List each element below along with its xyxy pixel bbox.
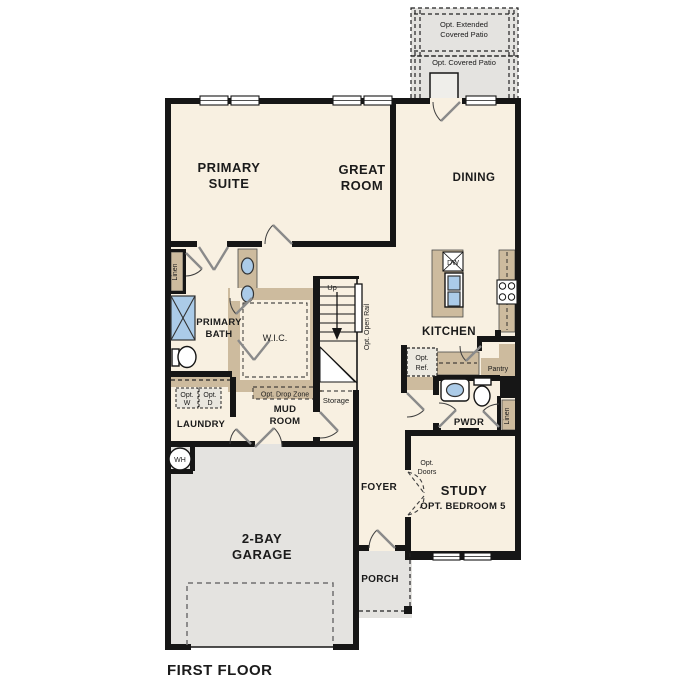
wall-laundry-mud — [230, 377, 236, 417]
ref-counter — [407, 377, 437, 390]
wic-label: W.I.C. — [263, 333, 288, 343]
storage-label: Storage — [323, 396, 349, 405]
window — [466, 96, 496, 105]
water-heater-label: WH — [174, 457, 186, 464]
wall-suite-divider — [390, 98, 396, 247]
opt-extended-patio-label-1: Opt. Extended — [440, 20, 488, 29]
opt-open-rail-label: Opt. Open Rail — [364, 303, 371, 350]
window — [333, 96, 361, 105]
opt-ref-label-1: Opt. — [415, 355, 428, 362]
wall-garage-top-2 — [282, 441, 359, 447]
foyer-label: FOYER — [361, 482, 397, 493]
laundry-label: LAUNDRY — [177, 419, 226, 430]
vanity-sink-1 — [242, 258, 254, 274]
pantry-label: Pantry — [488, 366, 509, 373]
linen-left-label: Linen — [172, 263, 179, 280]
window — [364, 96, 392, 105]
porch-post — [404, 606, 412, 614]
primary-suite-label-2: SUITE — [209, 176, 250, 191]
bath-toilet-bowl — [178, 347, 196, 368]
opt-covered-patio-label: Opt. Covered Patio — [432, 58, 496, 67]
study-label: STUDY — [441, 483, 488, 498]
opt-ref-label-2: Ref. — [416, 365, 429, 372]
opt-extended-patio-label-2: Covered Patio — [440, 30, 488, 39]
floor-plan-drawing: Opt. Extended Covered Patio Opt. Covered… — [0, 0, 687, 687]
wall-foyer-front-1 — [359, 545, 369, 551]
porch-label: PORCH — [361, 574, 399, 585]
wall-stairs-left — [313, 278, 320, 390]
window — [433, 553, 460, 560]
wall-suite-bottom-3 — [292, 241, 390, 247]
opt-drop-zone-label: Opt. Drop Zone — [261, 392, 309, 399]
kitchen-label: KITCHEN — [422, 326, 476, 338]
wall-study-left-1 — [405, 436, 411, 470]
dining-label: DINING — [453, 172, 496, 184]
patio-areas: Opt. Extended Covered Patio Opt. Covered… — [411, 8, 518, 103]
wall-linen-side — [183, 249, 186, 294]
wall-right — [515, 98, 521, 560]
opt-washer-label-1: Opt. — [180, 392, 193, 399]
opt-bedroom5-label: OPT. BEDROOM 5 — [420, 501, 506, 512]
wall-study-bottom — [405, 551, 521, 560]
island-sink-basin-1 — [448, 276, 460, 290]
wall-garage-right — [353, 390, 359, 650]
opt-dryer-label-1: Opt. — [203, 392, 216, 399]
laundry-counter — [171, 377, 230, 387]
window — [231, 96, 259, 105]
wall-suite-bottom-2 — [227, 241, 262, 247]
wall-counter-end — [495, 330, 501, 338]
primary-suite-label-1: PRIMARY — [198, 160, 261, 175]
linen-right-label: Linen — [504, 407, 511, 424]
wall-study-top — [405, 430, 521, 436]
opt-washer-label-2: W — [184, 400, 191, 407]
window — [464, 553, 491, 560]
wall-ref-left — [401, 345, 407, 393]
opt-doors-label-2: Doors — [418, 469, 437, 476]
opt-dryer-label-2: D — [207, 400, 212, 407]
patio-door-opening — [430, 98, 462, 104]
mud-room-label-2: ROOM — [270, 416, 301, 427]
wall-bath-laundry — [165, 371, 232, 377]
pwdr-toilet-bowl — [474, 386, 490, 406]
opt-doors-label-1: Opt. — [420, 460, 433, 467]
great-room-label-1: GREAT — [338, 162, 385, 177]
first-floor-title: FIRST FLOOR — [167, 662, 273, 679]
stairs-up-label: Up — [327, 283, 337, 292]
pwdr-toilet-tank — [474, 378, 491, 385]
window — [200, 96, 228, 105]
dishwasher-label: DW — [447, 260, 459, 267]
garage-label-2: GARAGE — [232, 547, 292, 562]
primary-bath-label-1: PRIMARY — [196, 317, 242, 328]
great-room-label-2: ROOM — [341, 178, 383, 193]
mud-room-label-1: MUD — [274, 404, 297, 415]
pantry-shelf-upper — [499, 344, 515, 358]
wall-block-right — [500, 376, 521, 398]
wall-garage-bottom-2 — [333, 644, 359, 650]
wall-garage-top-1 — [165, 441, 255, 447]
pwdr-sink — [447, 384, 464, 397]
wall-study-left-2 — [405, 517, 411, 551]
wall-storage-left-2 — [313, 437, 320, 447]
pwdr-label: PWDR — [454, 417, 484, 428]
floor-plan-page: Opt. Extended Covered Patio Opt. Covered… — [0, 0, 687, 687]
wall-foyer-front-2 — [395, 545, 405, 551]
wall-storage-left-1 — [313, 390, 320, 412]
open-rail — [355, 284, 362, 332]
wall-suite-bottom-1 — [165, 241, 197, 247]
primary-bath-label-2: BATH — [206, 329, 233, 340]
garage-label-1: 2-BAY — [242, 531, 282, 546]
island-sink-basin-2 — [448, 292, 460, 306]
